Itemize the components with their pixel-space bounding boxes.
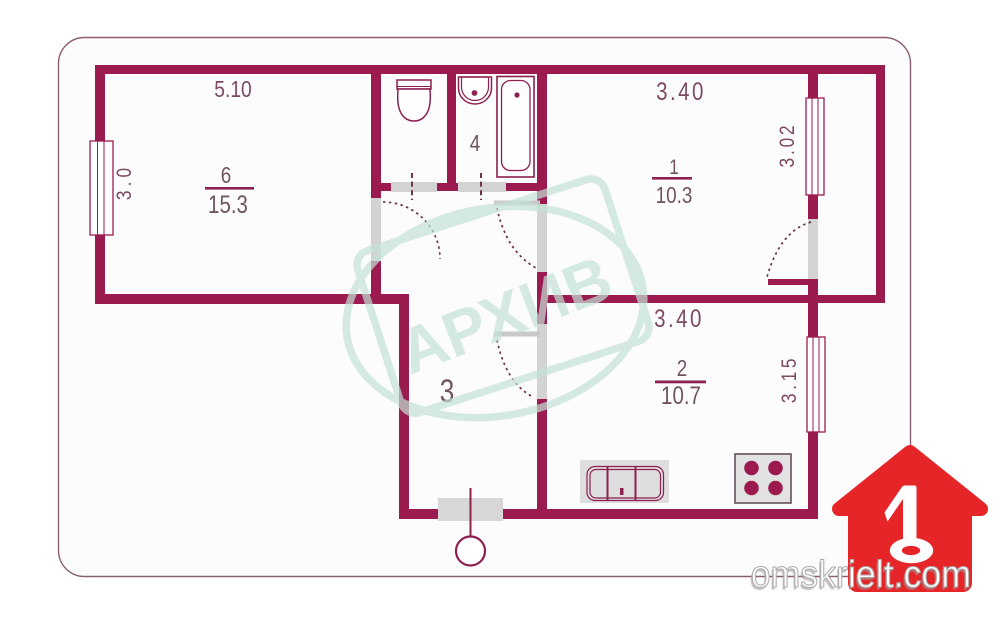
svg-text:3.02: 3.02: [777, 123, 800, 168]
svg-text:1: 1: [669, 157, 679, 180]
svg-text:2: 2: [677, 356, 687, 381]
svg-text:3.40: 3.40: [656, 77, 706, 105]
svg-text:10.3: 10.3: [656, 183, 693, 208]
svg-text:3.40: 3.40: [654, 304, 704, 332]
svg-text:5.10: 5.10: [214, 76, 252, 102]
svg-text:15.3: 15.3: [208, 190, 248, 218]
svg-text:10.7: 10.7: [661, 381, 701, 409]
svg-text:3.0: 3.0: [114, 164, 137, 200]
svg-text:3.15: 3.15: [779, 355, 802, 403]
svg-text:omskrielt.com: omskrielt.com: [751, 553, 971, 595]
svg-text:6: 6: [221, 163, 231, 188]
svg-text:4: 4: [470, 131, 481, 156]
